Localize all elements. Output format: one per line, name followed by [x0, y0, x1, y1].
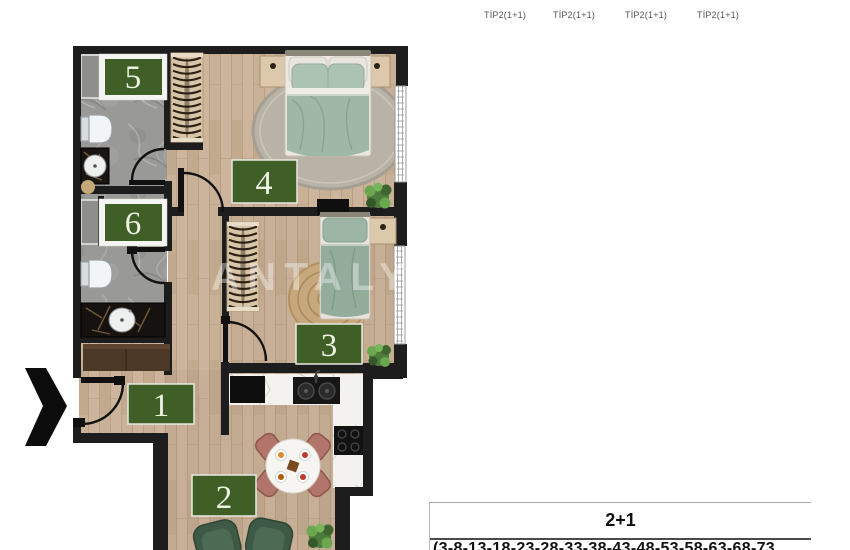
svg-text:6: 6	[125, 206, 142, 242]
svg-text:ANTALY: ANTALY	[211, 256, 414, 299]
svg-text:2: 2	[216, 480, 233, 516]
svg-text:5: 5	[125, 60, 142, 96]
svg-text:4: 4	[256, 165, 273, 202]
svg-text:1: 1	[153, 388, 170, 424]
svg-text:3: 3	[321, 328, 338, 364]
